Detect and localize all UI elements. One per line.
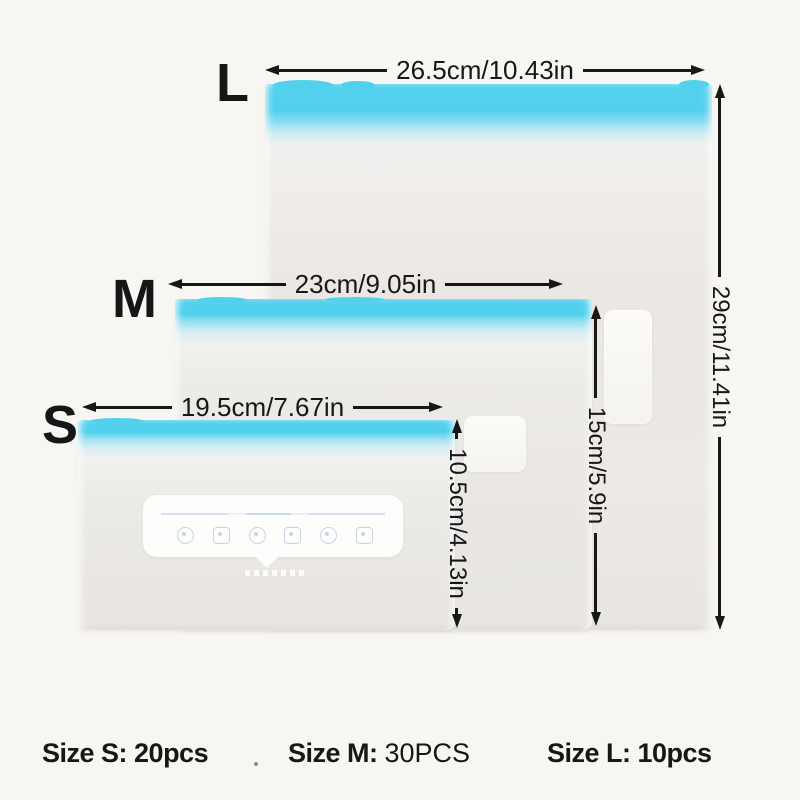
caption-size-l: Size L:10pcs xyxy=(547,738,712,769)
dimension-width-s: 19.5cm/7.67in xyxy=(82,389,443,425)
dimension-width-l: 26.5cm/10.43in xyxy=(265,52,705,88)
size-letter-s: S xyxy=(42,398,77,452)
arrowhead-up-icon xyxy=(452,419,462,433)
caption-size-s-label: Size S: xyxy=(42,738,127,768)
caption-size-l-label: Size L: xyxy=(547,738,631,768)
dimension-height-m-label: 15cm/5.9in xyxy=(582,398,610,533)
dimension-height-s: 10.5cm/4.13in xyxy=(442,419,472,628)
dimension-height-l-label: 29cm/11.41in xyxy=(706,277,734,437)
caption-separator-dot xyxy=(254,762,258,766)
care-icons-row xyxy=(177,527,373,544)
arrowhead-up-icon xyxy=(715,84,725,98)
arrowhead-up-icon xyxy=(591,305,601,319)
dimension-width-m: 23cm/9.05in xyxy=(168,266,563,302)
care-icon xyxy=(249,527,266,544)
care-label-bubble xyxy=(143,495,403,557)
care-icon xyxy=(284,527,301,544)
arrowhead-down-icon xyxy=(591,612,601,626)
caption-size-m: Size M:30PCS xyxy=(288,738,470,769)
piece-count-row: Size S:20pcs Size M:30PCS Size L:10pcs xyxy=(0,738,800,778)
arrowhead-right-icon xyxy=(429,402,443,412)
bag-s-slider-tab xyxy=(464,416,526,472)
caption-size-s-count: 20pcs xyxy=(134,738,208,768)
caption-size-l-count: 10pcs xyxy=(638,738,712,768)
dimension-width-s-label: 19.5cm/7.67in xyxy=(172,392,353,423)
bubble-tail xyxy=(255,556,279,568)
dimension-height-s-label: 10.5cm/4.13in xyxy=(443,439,471,608)
size-letter-l: L xyxy=(216,56,248,110)
size-letter-m: M xyxy=(112,272,156,326)
arrowhead-left-icon xyxy=(168,279,182,289)
bag-m-slider-tab xyxy=(604,310,652,424)
care-icon xyxy=(177,527,194,544)
dimension-width-l-label: 26.5cm/10.43in xyxy=(387,55,583,86)
arrowhead-right-icon xyxy=(549,279,563,289)
caption-size-m-count: 30PCS xyxy=(385,738,471,768)
dimension-height-l: 29cm/11.41in xyxy=(705,84,735,630)
arrowhead-right-icon xyxy=(691,65,705,75)
arrowhead-left-icon xyxy=(82,402,96,412)
caption-size-m-label: Size M: xyxy=(288,738,378,768)
dimension-height-m: 15cm/5.9in xyxy=(581,305,611,626)
dimension-width-m-label: 23cm/9.05in xyxy=(286,269,446,300)
arrowhead-left-icon xyxy=(265,65,279,75)
care-icon xyxy=(213,527,230,544)
care-label-line xyxy=(161,513,385,515)
care-icon xyxy=(356,527,373,544)
faint-print-text xyxy=(245,570,307,576)
arrowhead-down-icon xyxy=(452,614,462,628)
bag-size-diagram: L M S 26.5cm/10.43in 23cm/9.05in 19.5cm/… xyxy=(0,0,800,800)
arrowhead-down-icon xyxy=(715,616,725,630)
care-icon xyxy=(320,527,337,544)
caption-size-s: Size S:20pcs xyxy=(42,738,208,769)
